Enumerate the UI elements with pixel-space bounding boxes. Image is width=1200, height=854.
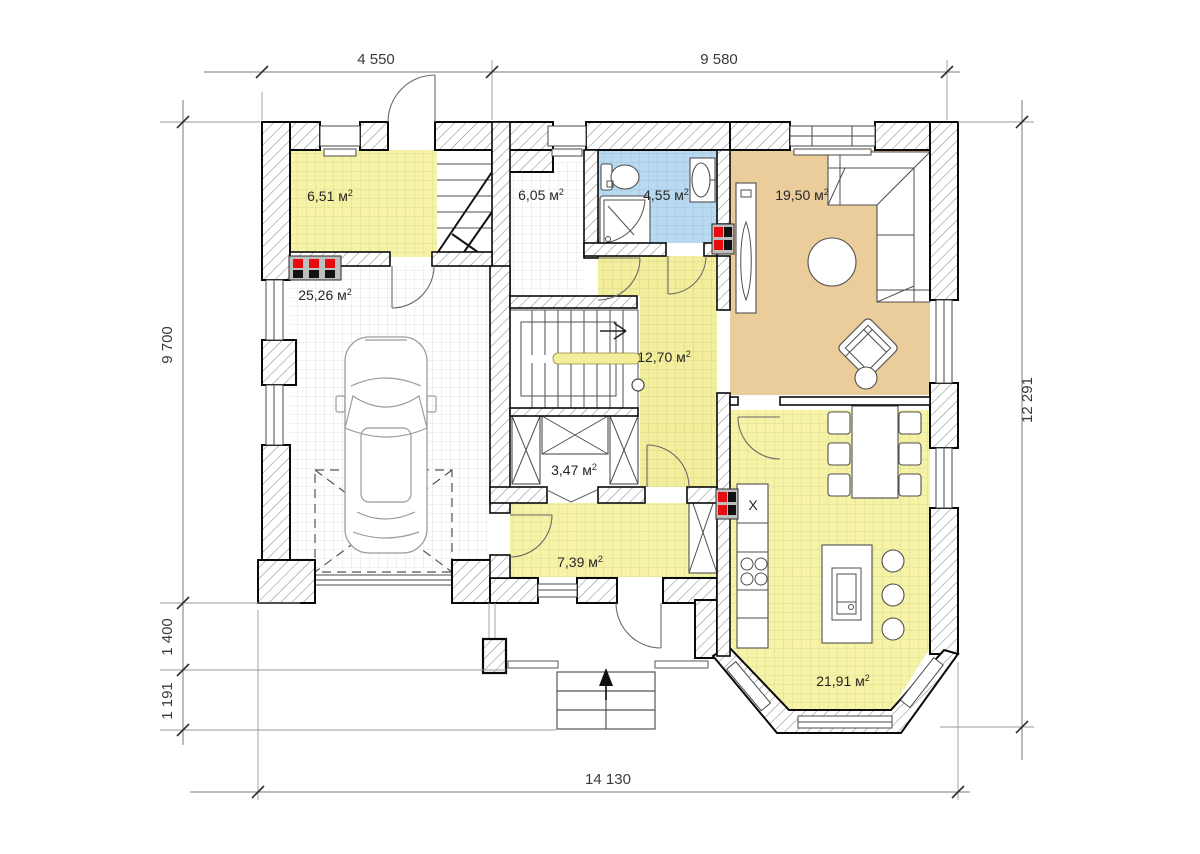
fridge-label: X [748,497,758,513]
window-living-top [790,126,875,155]
label-kitchen-dining: 21,91 м2 [816,673,870,689]
porch-column [483,639,506,673]
shower [600,196,650,247]
window-hallway-south [538,584,577,597]
radiator-kitchen [716,489,738,519]
window-hall [548,126,586,156]
dim-right: 12 291 [1019,377,1036,423]
stair-handrail [553,353,640,364]
floor-grid-hall [510,162,584,296]
porch-door [616,603,661,648]
porch-railing-right [655,661,708,668]
dining-table [852,406,898,498]
stair-break-line [438,172,492,255]
dim-top-left: 4 550 [357,51,395,68]
toilet [601,164,639,190]
car [336,337,436,553]
label-entry-hall: 6,51 м2 [307,188,353,204]
dim-top-right: 9 580 [700,51,738,68]
label-hall: 6,05 м2 [518,187,564,203]
round-table [808,238,856,286]
dim-bottom: 14 130 [585,771,631,788]
floor-plan-page: X [0,0,1200,849]
staircase-upper [437,164,495,255]
dining-set [828,406,921,498]
kitchen-island [822,545,872,643]
dim-left-main: 9 700 [159,326,176,364]
window-entry [320,126,360,156]
dim-left-porch: 1 400 [159,618,176,656]
window-garage-left-1 [266,280,283,340]
entry-door [388,75,435,122]
label-living-room: 19,50 м2 [775,187,829,203]
label-stair-hall: 12,70 м2 [637,349,691,365]
floor-grid-hallway [510,503,717,577]
bar-stools [882,550,904,640]
kitchen-counter: X [737,484,768,648]
label-hallway: 7,39 м2 [557,554,603,570]
window-garage-left-2 [266,385,283,445]
radiator-living [712,224,734,254]
radiator-entry [289,256,341,280]
label-garage: 25,26 м2 [298,287,352,303]
window-living-right [936,300,952,383]
label-closet: 3,47 м2 [551,462,597,478]
label-bathroom: 4,55 м2 [643,187,689,203]
dim-left-steps: 1 191 [159,682,176,720]
floor-plan-drawing: X [0,0,1200,849]
hallway-wardrobe [689,492,717,573]
stair-newel-post [632,379,644,391]
washbasin [690,158,716,202]
table-head-chair [855,367,877,389]
staircase-main [510,310,644,408]
closet-folding-door [547,490,597,502]
tv-cabinet [736,183,756,313]
porch-railing-left [508,661,558,668]
porch [483,603,708,729]
window-kitchen-right [936,448,952,508]
